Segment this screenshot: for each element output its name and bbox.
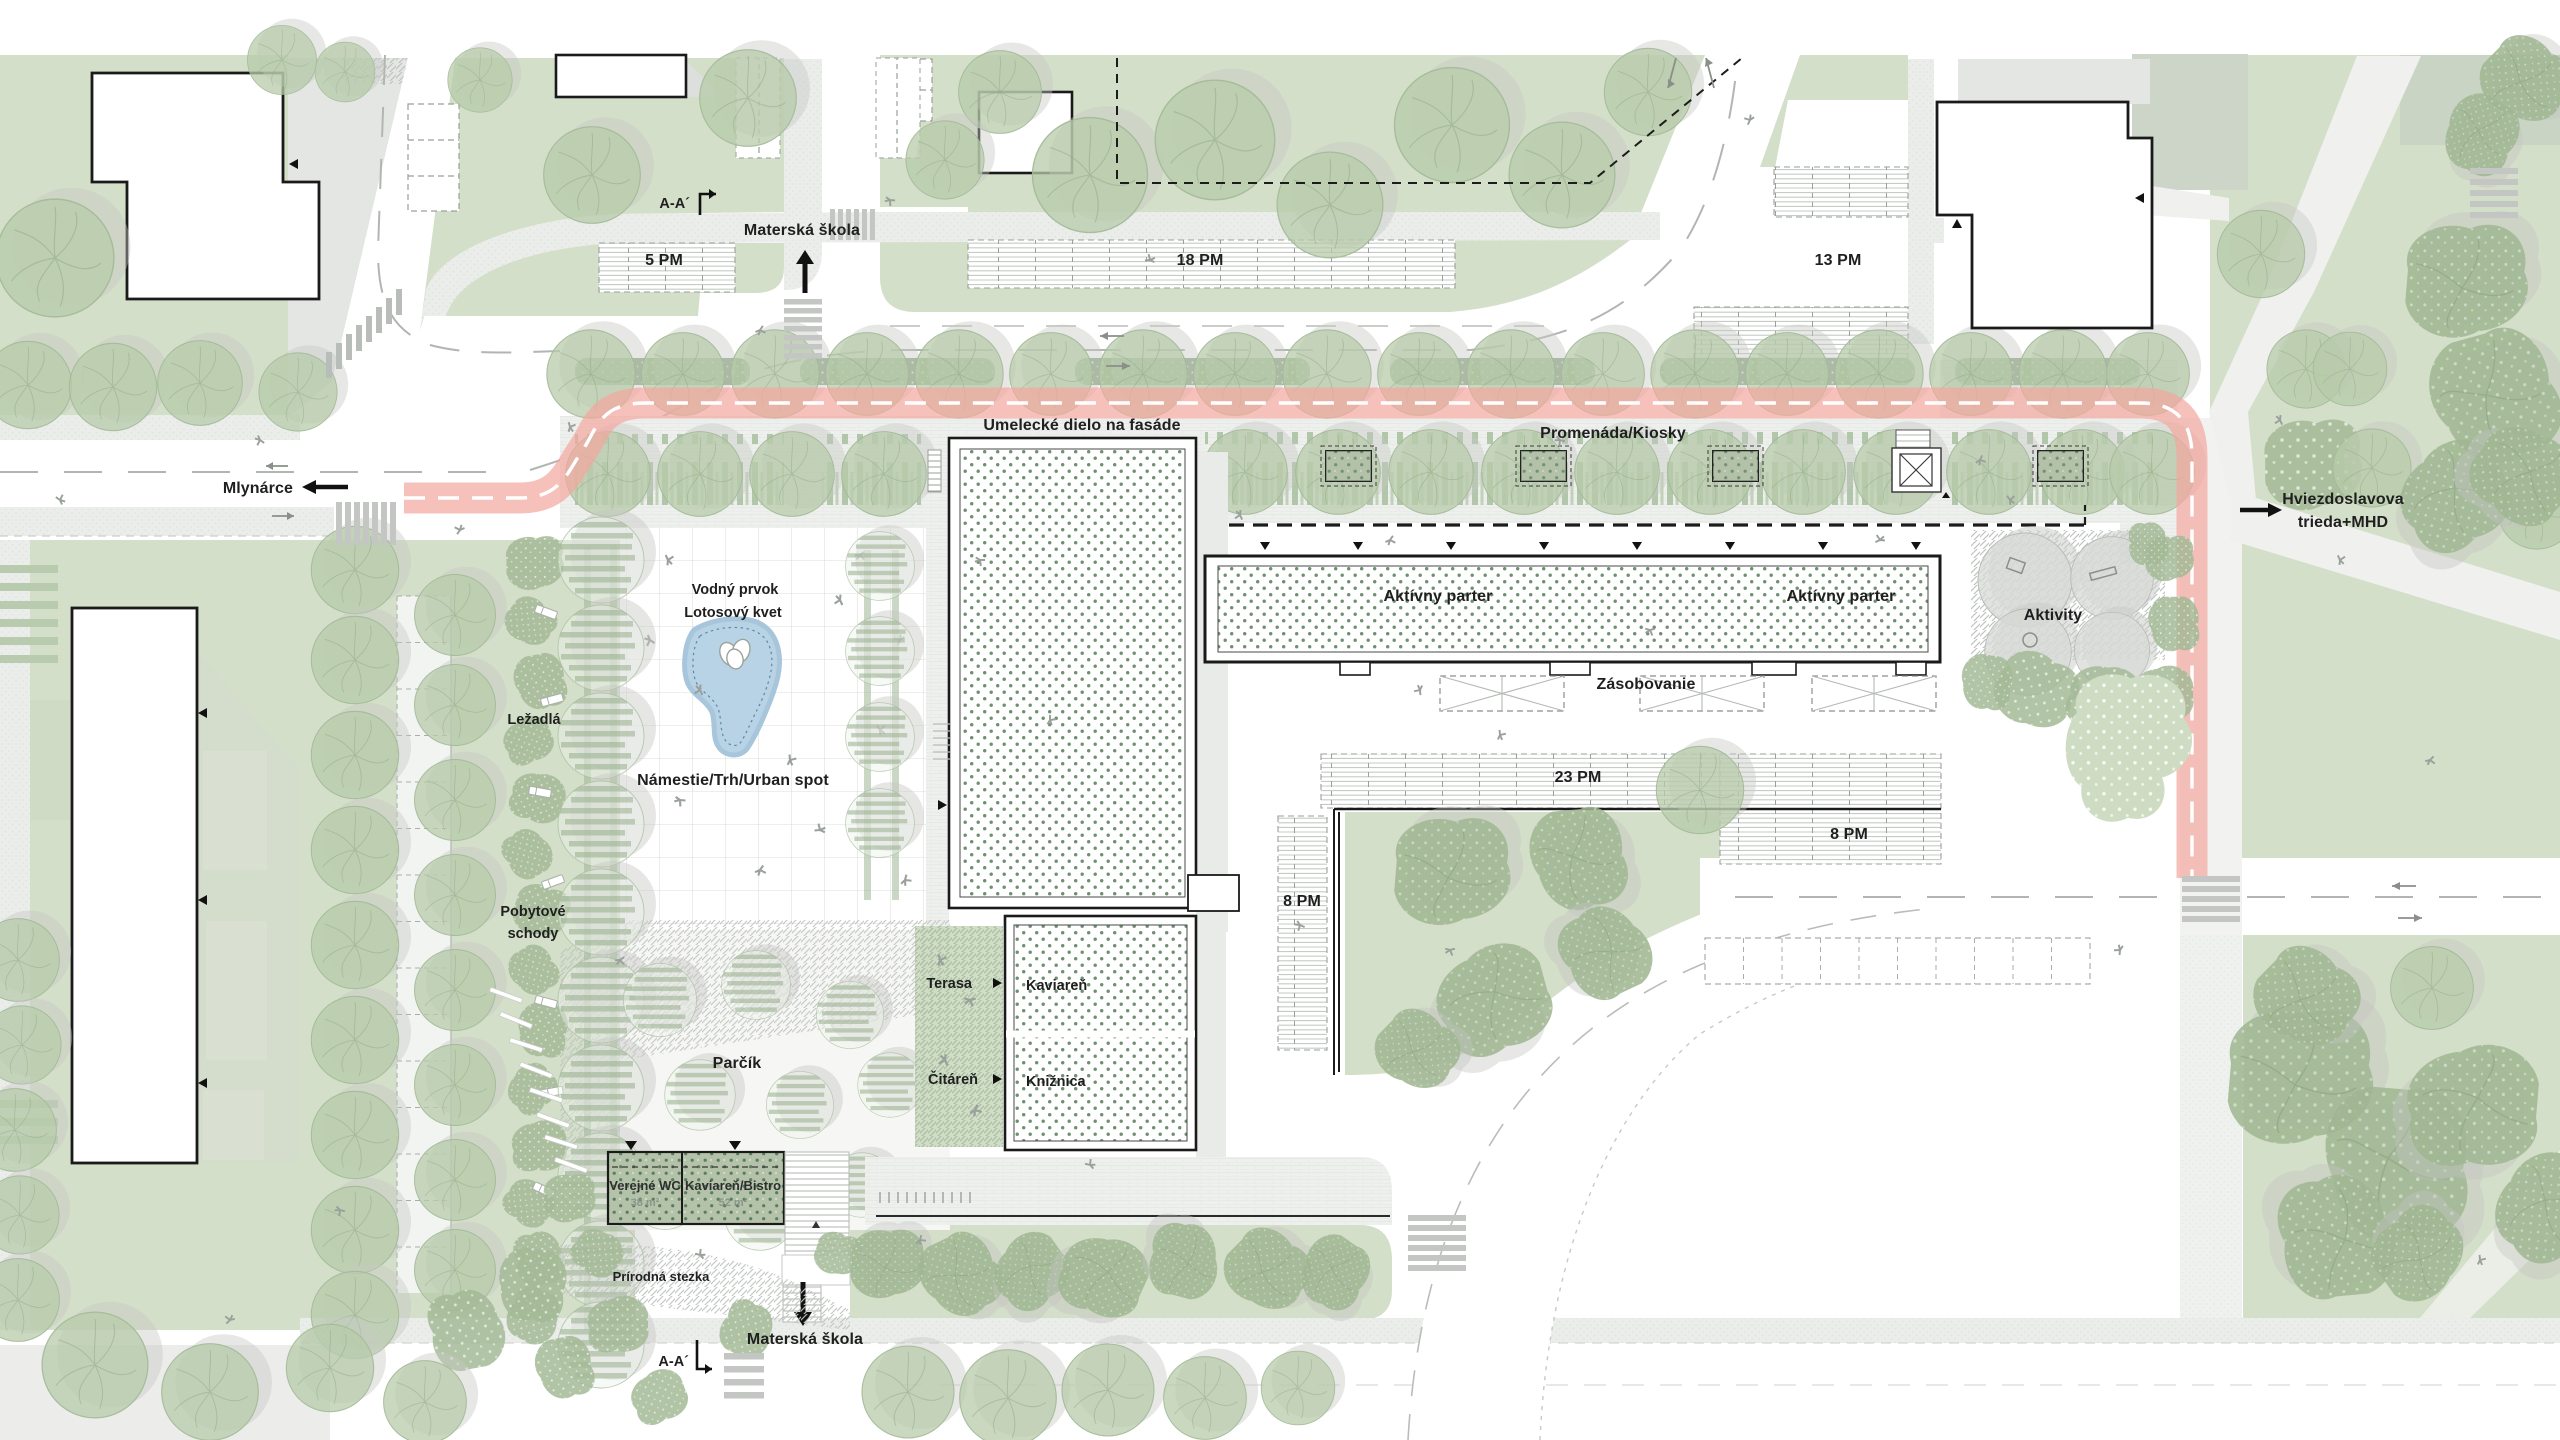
svg-text:A-A´: A-A´ <box>658 1354 689 1370</box>
svg-text:Materská škola: Materská škola <box>747 1331 863 1348</box>
svg-text:Aktívny parter: Aktívny parter <box>1384 588 1493 605</box>
svg-text:trieda+MHD: trieda+MHD <box>2298 514 2388 531</box>
svg-text:8 PM: 8 PM <box>1830 826 1868 843</box>
svg-text:Prírodná stezka: Prírodná stezka <box>613 1269 711 1284</box>
svg-text:Mlynárce: Mlynárce <box>223 480 293 497</box>
svg-text:8 PM: 8 PM <box>1283 893 1321 910</box>
svg-text:18 PM: 18 PM <box>1177 252 1224 269</box>
svg-text:Terasa: Terasa <box>926 976 973 992</box>
svg-text:Aktívny parter: Aktívny parter <box>1787 588 1896 605</box>
svg-text:5 PM: 5 PM <box>645 252 683 269</box>
svg-text:Knižnica: Knižnica <box>1026 1074 1087 1090</box>
svg-text:Promenáda/Kiosky: Promenáda/Kiosky <box>1540 425 1686 442</box>
svg-text:Umelecké dielo na fasáde: Umelecké dielo na fasáde <box>983 417 1180 434</box>
svg-text:Pobytové: Pobytové <box>500 904 565 920</box>
svg-text:schody: schody <box>508 926 559 942</box>
svg-text:Hviezdoslavova: Hviezdoslavova <box>2282 491 2403 508</box>
svg-text:23 PM: 23 PM <box>1555 769 1602 786</box>
svg-text:A-A´: A-A´ <box>659 196 690 212</box>
svg-text:13 PM: 13 PM <box>1815 252 1862 269</box>
svg-text:Materská škola: Materská škola <box>744 222 860 239</box>
svg-text:Aktivity: Aktivity <box>2024 607 2083 624</box>
svg-text:Kaviareň/Bistro: Kaviareň/Bistro <box>685 1178 781 1193</box>
svg-text:Čitáreň: Čitáreň <box>928 1070 978 1088</box>
svg-text:52 m²: 52 m² <box>719 1197 748 1209</box>
svg-text:38 m²: 38 m² <box>631 1197 660 1209</box>
svg-text:Námestie/Trh/Urban spot: Námestie/Trh/Urban spot <box>637 772 829 789</box>
svg-text:Verejné WC: Verejné WC <box>609 1178 681 1193</box>
svg-text:Kaviareň: Kaviareň <box>1026 978 1087 994</box>
svg-text:Lotosový kvet: Lotosový kvet <box>684 605 782 621</box>
svg-text:Vodný prvok: Vodný prvok <box>692 582 780 598</box>
svg-text:Parčík: Parčík <box>713 1055 762 1072</box>
svg-text:Zásobovanie: Zásobovanie <box>1597 676 1696 693</box>
svg-text:Ležadlá: Ležadlá <box>507 712 561 728</box>
